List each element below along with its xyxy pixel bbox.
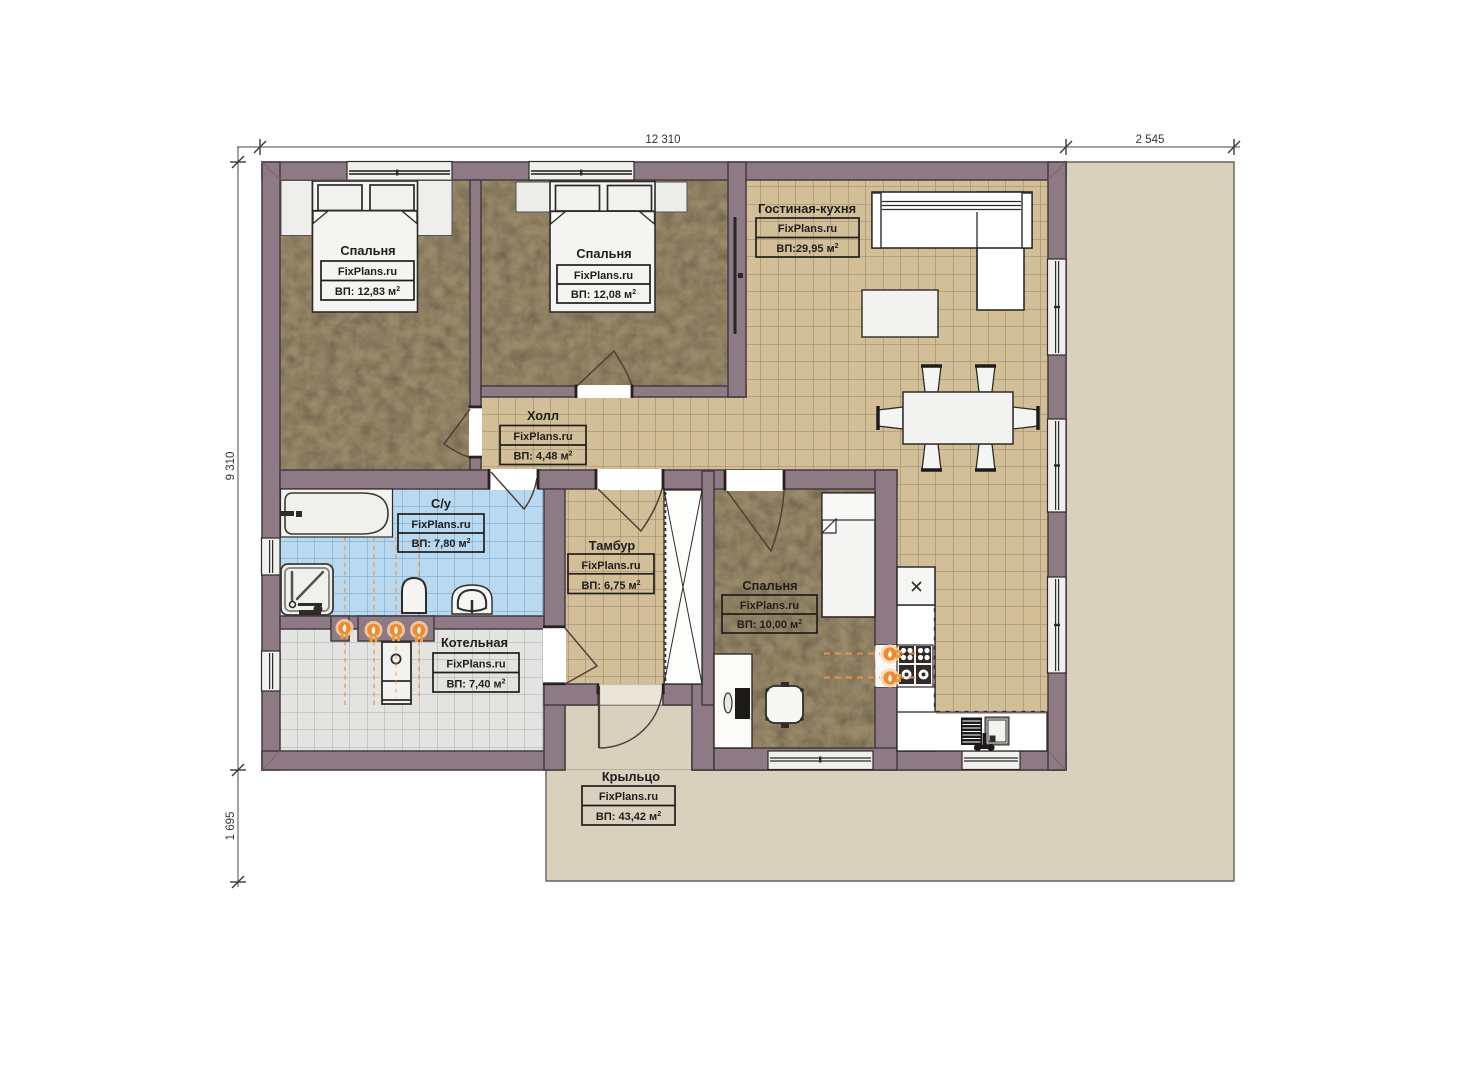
svg-text:ВП: 4,48 м2: ВП: 4,48 м2 <box>513 451 572 463</box>
svg-text:2 545: 2 545 <box>1136 134 1165 146</box>
svg-text:Тамбур: Тамбур <box>589 538 636 553</box>
svg-text:FixPlans.ru: FixPlans.ru <box>446 659 505 671</box>
svg-text:Котельная: Котельная <box>441 635 508 650</box>
svg-text:FixPlans.ru: FixPlans.ru <box>411 519 470 531</box>
svg-text:Гостиная-кухня: Гостиная-кухня <box>758 201 856 216</box>
svg-text:FixPlans.ru: FixPlans.ru <box>740 600 799 612</box>
svg-text:ВП: 43,42 м2: ВП: 43,42 м2 <box>596 811 661 823</box>
svg-text:Спальня: Спальня <box>576 246 631 261</box>
svg-text:ВП: 12,08 м2: ВП: 12,08 м2 <box>571 289 636 301</box>
svg-text:ВП: 7,40 м2: ВП: 7,40 м2 <box>446 679 505 691</box>
svg-text:ВП: 12,83 м2: ВП: 12,83 м2 <box>335 286 400 298</box>
svg-text:FixPlans.ru: FixPlans.ru <box>599 791 658 803</box>
svg-text:12 310: 12 310 <box>645 134 680 146</box>
svg-text:9 310: 9 310 <box>225 452 237 481</box>
svg-text:ВП:29,95 м2: ВП:29,95 м2 <box>776 243 838 255</box>
svg-text:Крыльцо: Крыльцо <box>602 769 660 784</box>
svg-text:ВП: 10,00 м2: ВП: 10,00 м2 <box>737 619 802 631</box>
svg-text:ВП: 6,75 м2: ВП: 6,75 м2 <box>581 580 640 592</box>
svg-text:FixPlans.ru: FixPlans.ru <box>513 431 572 443</box>
svg-text:1 695: 1 695 <box>225 812 237 841</box>
svg-text:ВП: 7,80 м2: ВП: 7,80 м2 <box>411 538 470 550</box>
svg-text:FixPlans.ru: FixPlans.ru <box>338 266 397 278</box>
svg-text:FixPlans.ru: FixPlans.ru <box>574 270 633 282</box>
svg-text:FixPlans.ru: FixPlans.ru <box>581 560 640 572</box>
svg-text:FixPlans.ru: FixPlans.ru <box>778 223 837 235</box>
svg-text:Спальня: Спальня <box>742 578 797 593</box>
svg-text:Холл: Холл <box>527 408 559 423</box>
svg-text:Спальня: Спальня <box>340 243 395 258</box>
svg-text:С/у: С/у <box>431 496 452 511</box>
